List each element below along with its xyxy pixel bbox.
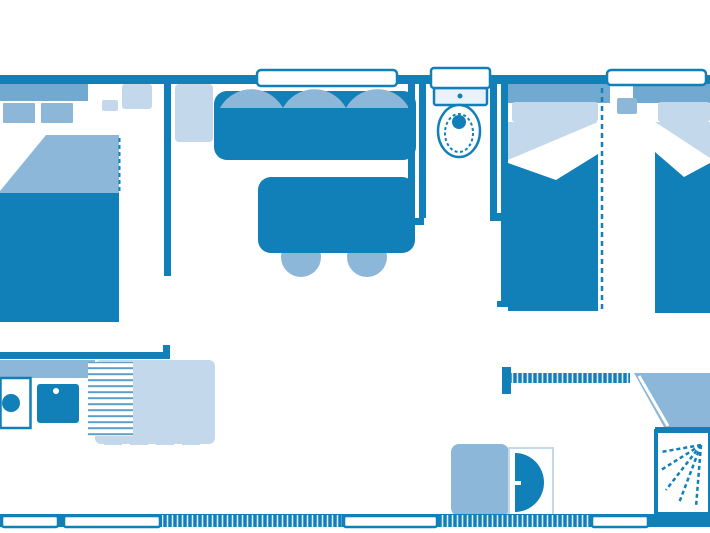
- window-bottom-2: [64, 516, 160, 527]
- bed-head-shelf: [508, 84, 610, 103]
- wc-right-wall: [490, 84, 497, 214]
- flush-button: [458, 94, 463, 99]
- blanket-fold: [655, 122, 710, 158]
- basin-tap: [511, 481, 521, 485]
- wc-left-wall: [419, 84, 426, 218]
- wall-foot-tick: [497, 301, 508, 307]
- floor-plan-svg: [0, 0, 710, 533]
- floor-plan: [0, 0, 710, 533]
- dining-table: [258, 177, 415, 253]
- vanity-cabinet: [451, 444, 509, 516]
- kitchen-wall-stub: [163, 345, 170, 359]
- window-bottom-4: [592, 516, 648, 527]
- wardrobe: [122, 84, 152, 109]
- sliding-door-entrance: [162, 515, 342, 527]
- blanket-fold: [508, 122, 598, 160]
- partition-bedroom-living: [164, 84, 171, 276]
- bed-head-shelf: [633, 84, 710, 103]
- window-twin-bedroom: [607, 70, 706, 85]
- window-living: [257, 70, 397, 86]
- room-master-bedroom: [0, 84, 152, 322]
- pillow: [2, 102, 36, 124]
- window-bottom-1: [2, 516, 58, 527]
- sink-drain: [53, 388, 59, 394]
- single-bed-left: [508, 154, 598, 311]
- drawer-handle: [104, 439, 122, 445]
- pillow: [658, 102, 710, 122]
- drawer-handle: [156, 439, 174, 445]
- room-living-dining: [175, 84, 416, 277]
- double-bed: [0, 193, 119, 322]
- sliding-door-secondary: [440, 515, 590, 527]
- toilet-lid-dot: [452, 115, 466, 129]
- window-wc: [431, 68, 490, 88]
- drawer-handle: [182, 439, 200, 445]
- room-bathroom: [451, 373, 710, 516]
- living-side-wall: [408, 84, 415, 225]
- hob-burner: [2, 394, 20, 412]
- single-bed-right: [655, 152, 710, 313]
- draining-board: [88, 362, 133, 436]
- counter-back: [0, 360, 95, 378]
- room-twin-bedroom: [508, 84, 710, 313]
- drawer-handle: [130, 439, 148, 445]
- room-kitchen: [0, 360, 215, 445]
- bedside-shelf: [617, 98, 637, 114]
- sofa-cushions: [220, 89, 409, 108]
- shower: [656, 431, 710, 514]
- bedside-unit: [102, 100, 118, 111]
- room-wc: [434, 88, 487, 157]
- window-bottom-3: [344, 516, 437, 527]
- bathroom-wall-cap: [502, 367, 511, 394]
- pillow: [40, 102, 74, 124]
- wall-end-tick: [413, 218, 424, 225]
- bed-head-shelf: [0, 84, 88, 101]
- pillow: [512, 102, 598, 122]
- kitchen-wall: [0, 352, 170, 359]
- cupboard: [175, 84, 213, 142]
- twin-room-wall: [501, 84, 508, 306]
- bathroom-sliding-door: [511, 373, 630, 383]
- corner-unit: [634, 373, 710, 427]
